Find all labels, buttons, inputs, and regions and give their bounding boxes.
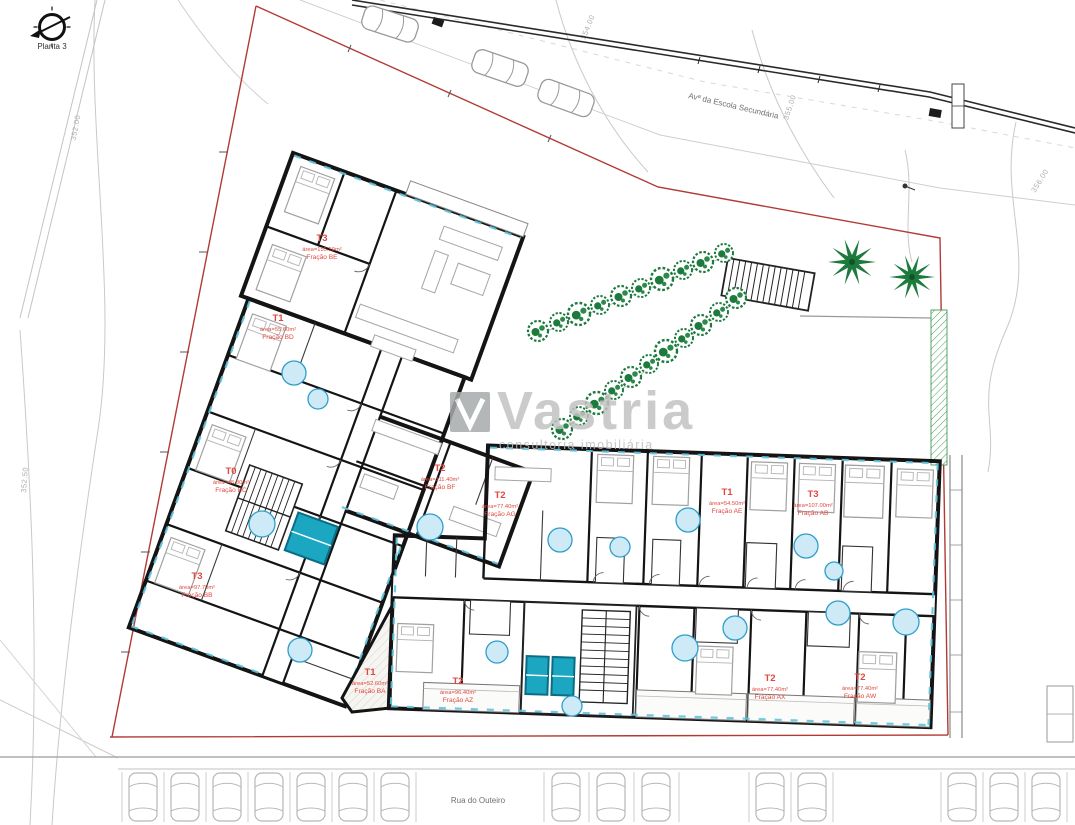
shrub-icon (655, 340, 677, 362)
svg-text:T0: T0 (225, 466, 236, 477)
svg-text:T3: T3 (316, 233, 327, 244)
shrub-icon (611, 286, 631, 306)
bed-icon (844, 465, 885, 518)
wing-connector (342, 606, 392, 712)
contour-label: 356.00 (1029, 167, 1050, 194)
shrub-icon (675, 329, 693, 347)
svg-text:área=77.40m²: área=77.40m² (752, 687, 788, 693)
parked-car-icon (213, 773, 241, 821)
svg-text:área=97.70m²: área=97.70m² (179, 585, 215, 591)
utility-box (432, 17, 445, 27)
svg-text:área=45.80m²: área=45.80m² (213, 480, 249, 486)
parked-car-icon (339, 773, 367, 821)
svg-text:Fração AG: Fração AG (484, 511, 516, 518)
svg-text:área=96.40m²: área=96.40m² (440, 690, 476, 696)
bed-icon (256, 244, 306, 301)
svg-text:área=155.50m²: área=155.50m² (302, 247, 342, 253)
svg-text:área=55.60m²: área=55.60m² (260, 327, 296, 333)
svg-text:área=107.00m²: área=107.00m² (793, 503, 833, 509)
svg-text:Fração AW: Fração AW (844, 693, 877, 700)
watermark-brand: Vastria (497, 381, 695, 441)
utility-box (929, 108, 942, 118)
parked-car-icon (297, 773, 325, 821)
retaining-wall (352, 0, 1075, 133)
parked-car-icon (756, 773, 784, 821)
svg-text:Fração AE: Fração AE (712, 508, 743, 515)
balcony (406, 181, 528, 237)
contour-label: 352.00 (69, 114, 82, 141)
street-bottom: Rua do Outeiro (0, 757, 1075, 822)
shrub-icon (528, 321, 548, 341)
street-bottom-label: Rua do Outeiro (451, 796, 506, 805)
parked-car-icon (642, 773, 670, 821)
parked-car-icon (990, 773, 1018, 821)
svg-text:Fração BD: Fração BD (262, 334, 294, 341)
bed-icon (284, 167, 334, 224)
bed-icon (896, 469, 934, 518)
svg-text:Fração AX: Fração AX (755, 694, 786, 701)
svg-text:área=77.40m²: área=77.40m² (842, 686, 878, 692)
hedge-strip (931, 310, 947, 465)
unit-label: T2área=96.40m²Fração AZ (440, 676, 476, 704)
contour-label: 352.50 (19, 467, 30, 494)
parked-car-icon (171, 773, 199, 821)
svg-text:T2: T2 (452, 676, 463, 687)
svg-text:Fração BA: Fração BA (354, 688, 386, 695)
parked-car-icon (470, 48, 531, 89)
shrub-icon (568, 303, 590, 325)
parked-car-icon (1032, 773, 1060, 821)
svg-text:Fração AB: Fração AB (798, 510, 829, 517)
svg-text:T3: T3 (807, 489, 818, 500)
floor-plan-drawing: 352.00 352.50 354.00 355.00 356.00 Avª d… (0, 0, 1075, 825)
parked-car-icon (129, 773, 157, 821)
svg-text:T3: T3 (191, 571, 202, 582)
svg-text:área=77.40m²: área=77.40m² (482, 504, 518, 510)
neighbour-building (950, 455, 1073, 742)
bed-icon (652, 456, 690, 505)
shrub-icon (632, 279, 650, 297)
bed-icon (695, 646, 733, 695)
svg-text:T2: T2 (434, 463, 445, 474)
svg-text:área=111.40m²: área=111.40m² (421, 477, 460, 483)
svg-text:Fração AZ: Fração AZ (443, 697, 473, 704)
contour-label: 355.00 (781, 93, 798, 120)
svg-text:Fração BB: Fração BB (181, 592, 213, 599)
parked-car-icon (552, 773, 580, 821)
shrub-icon (715, 244, 733, 262)
svg-text:área=54.50m²: área=54.50m² (709, 501, 745, 507)
shrub-icon (710, 303, 728, 321)
avenue-top: Avª da Escola Secundária (300, 0, 1075, 205)
shrub-icon (693, 252, 713, 272)
parked-car-icon (948, 773, 976, 821)
unit-label: T2área=77.40m²Fração AX (752, 673, 788, 701)
svg-text:T2: T2 (854, 672, 865, 683)
shrub-icon (591, 296, 609, 314)
unit-label: T1área=54.50m²Fração AE (709, 487, 745, 515)
svg-text:Fração BC: Fração BC (215, 487, 247, 494)
watermark: Vastria consultoria imobiliária (450, 381, 695, 452)
svg-text:T2: T2 (494, 490, 505, 501)
parked-car-icon (597, 773, 625, 821)
svg-text:T2: T2 (764, 673, 775, 684)
unit-label: T3área=155.50m²Fração BE (302, 233, 342, 261)
svg-text:Fração BE: Fração BE (306, 254, 338, 261)
shrub-icon (674, 261, 692, 279)
shrub-icon (691, 315, 711, 335)
avenue-label: Avª da Escola Secundária (688, 91, 780, 121)
svg-text:área=52.60m²: área=52.60m² (352, 681, 388, 687)
bed-icon (396, 623, 434, 672)
parked-car-icon (381, 773, 409, 821)
svg-text:Fração BF: Fração BF (425, 484, 456, 491)
parked-car-icon (255, 773, 283, 821)
shrub-icon (640, 355, 658, 373)
lower-wing-building (389, 442, 940, 727)
unit-label: T2área=111.40m²Fração BF (421, 463, 460, 491)
unit-label: T1área=55.60m²Fração BD (260, 313, 296, 341)
shrub-icon (651, 268, 673, 290)
palm-tree-icon (828, 239, 876, 285)
watermark-tagline: consultoria imobiliária (499, 438, 654, 452)
svg-text:T1: T1 (364, 667, 376, 678)
parked-car-icon (798, 773, 826, 821)
svg-text:T1: T1 (272, 313, 284, 324)
sheet-label: Planta 3 (37, 42, 67, 51)
bed-icon (596, 454, 634, 503)
bed-icon (750, 462, 788, 511)
shrub-icon (550, 313, 568, 331)
shrub-icon (726, 288, 746, 308)
svg-text:T1: T1 (721, 487, 733, 498)
